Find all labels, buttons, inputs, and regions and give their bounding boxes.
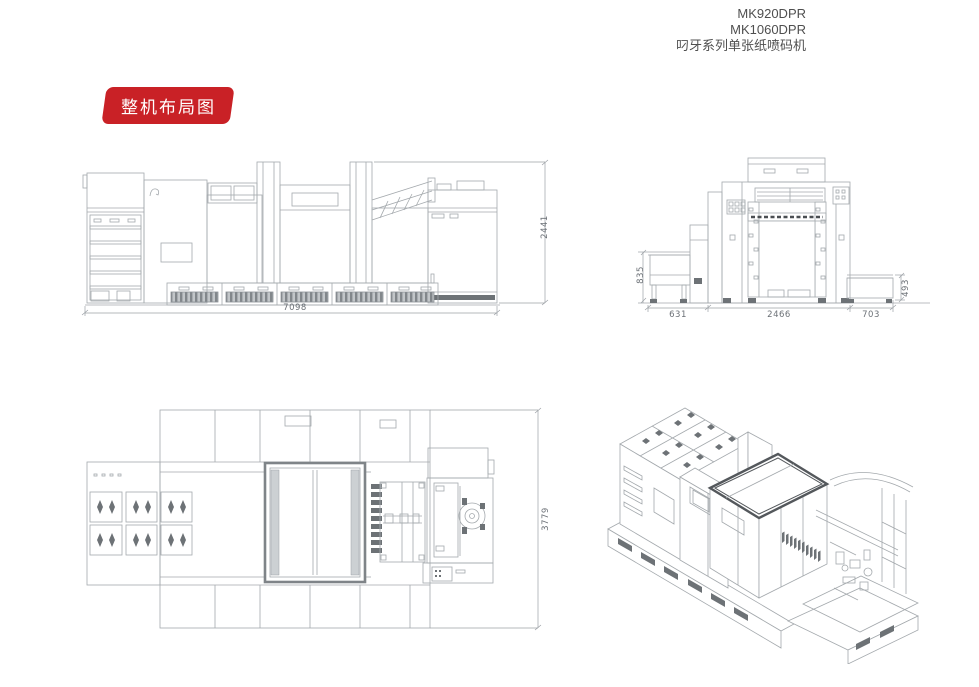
dim-label-front-height-left: 835 [636, 255, 646, 295]
plan-dimension-lines [430, 408, 541, 630]
front-elevation-drawing [630, 150, 979, 330]
dim-label-side-height: 2441 [540, 207, 550, 247]
side-elevation-drawing [80, 148, 560, 333]
section-title-badge: 整机布局图 [101, 87, 234, 124]
feeder-access-panels [90, 492, 192, 555]
series-name: 叼牙系列单张纸喷码机 [676, 38, 806, 54]
feeder-cabinet [144, 180, 207, 303]
dim-label-front-width-left: 631 [658, 310, 698, 320]
dim-label-plan-depth: 3779 [541, 499, 551, 539]
delivery-mechanism [432, 483, 485, 581]
main-frame [708, 158, 850, 303]
left-attachment-conveyor [648, 225, 708, 303]
print-towers [257, 162, 372, 283]
coater-module [207, 183, 262, 283]
center-print-unit [265, 463, 365, 582]
model-name-2: MK1060DPR [676, 22, 806, 38]
isometric-view-drawing [598, 392, 979, 664]
dim-label-front-width-center: 2466 [754, 310, 804, 320]
model-name-1: MK920DPR [676, 6, 806, 22]
page: MK920DPR MK1060DPR 叼牙系列单张纸喷码机 整机布局图 [0, 0, 979, 687]
dim-label-front-height-right: 493 [901, 268, 911, 308]
dim-label-side-width: 7098 [272, 303, 318, 313]
section-title-label: 整机布局图 [121, 93, 216, 118]
transfer-bridge [372, 178, 435, 283]
jogger-unit [380, 482, 425, 562]
feeder-tower [83, 173, 144, 303]
plan-view-drawing [80, 396, 565, 641]
dim-label-front-width-right: 703 [851, 310, 891, 320]
base-plinth-modules [167, 283, 438, 305]
print-unit-body [710, 432, 827, 598]
right-delivery-table [847, 275, 893, 303]
header-model-block: MK920DPR MK1060DPR 叼牙系列单张纸喷码机 [676, 6, 806, 54]
